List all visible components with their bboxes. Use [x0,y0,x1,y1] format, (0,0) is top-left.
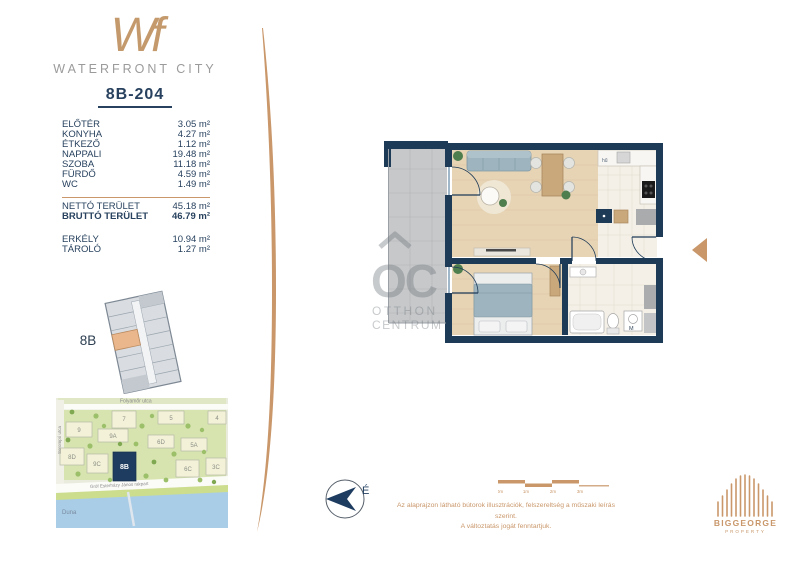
map-building-label: 5A [190,443,197,449]
fridge-label: hű [602,158,608,164]
unit-id: 8B-204 [98,86,172,108]
scale-tick: 0m [498,489,503,494]
disclaimer-line2: A változtatás jogát fenntartjuk. [392,522,620,533]
storage-block [636,209,657,225]
total-label: BRUTTÓ TERÜLET [62,212,148,222]
floor-plan: hű M [370,135,680,350]
disclaimer-line1: Az alaprajzon látható bútorok illusztrác… [392,501,620,522]
scale-bar: 0m 1m 2m 3m [498,480,614,496]
area-row: WC1.49 m² [62,180,210,190]
biggeorge-tower-icon [718,475,772,516]
street-label-left: Sorompó utca [57,425,62,454]
gross-area-row: BRUTTÓ TERÜLET46.79 m² [62,212,210,222]
map-building-label: 8D [68,455,76,461]
site-map: Folyamőr utca Sorompó utca Gróf Esterház… [54,396,230,530]
waterfront-city-logo: Wf [85,4,185,62]
plant [499,199,507,207]
area-table: ELŐTÉR3.05 m² KONYHA4.27 m² ÉTKEZŐ1.12 m… [62,120,210,255]
washer-label: M [629,326,634,332]
bath-cabinet [644,313,658,333]
unit-title: 8B-204 [45,86,225,108]
wardrobe [550,266,560,296]
map-building-8b-label: 8B [120,464,129,471]
brand-name: WATERFRONT CITY [45,62,225,76]
coffee-table [481,187,499,205]
map-building-label: 9A [109,434,116,440]
developer-division: PROPERTY [725,529,766,533]
room-area: 1.49 m² [178,180,210,190]
room-label: WC [62,180,78,190]
map-building-label: 3C [212,465,220,471]
scale-tick: 2m [550,489,557,494]
map-building-label: 6D [157,440,165,446]
bed [474,273,532,335]
room-label: TÁROLÓ [62,245,101,255]
watermark-line1: OTTHON [372,304,438,318]
logo-monogram: Wf [111,9,169,62]
prev-arrow[interactable] [692,238,707,262]
street-label-top: Folyamőr utca [120,399,152,405]
sofa [467,151,531,171]
north-label: É [362,484,369,497]
plant [453,151,463,161]
tv-bench [474,248,530,256]
toilet [608,314,619,329]
scale-tick: 1m [523,489,530,494]
room-area: 1.27 m² [178,245,210,255]
kitchen-sink [617,152,630,163]
gold-curve-divider [250,20,290,540]
building-mini-plan [100,290,190,394]
river-label: Duna [62,510,77,516]
compass: É [322,474,378,524]
shower [644,285,658,309]
map-building-label: 6C [184,467,192,473]
hall-cabinet [614,210,628,223]
map-road-top [56,404,228,410]
scale-tick: 3m [577,489,584,494]
total-area: 46.79 m² [172,212,210,222]
gold-divider-line [62,197,210,198]
map-building-label: 9C [93,462,101,468]
area-row: TÁROLÓ1.27 m² [62,245,210,255]
cooktop [642,181,655,198]
watermark-monogram: OC [371,255,437,307]
biggeorge-logo: BIGGEORGE PROPERTY [698,458,793,533]
watermark-line2: CENTRUM [372,318,443,332]
developer-name: BIGGEORGE [714,518,777,528]
disclaimer: Az alaprajzon látható bútorok illusztrác… [392,501,620,533]
